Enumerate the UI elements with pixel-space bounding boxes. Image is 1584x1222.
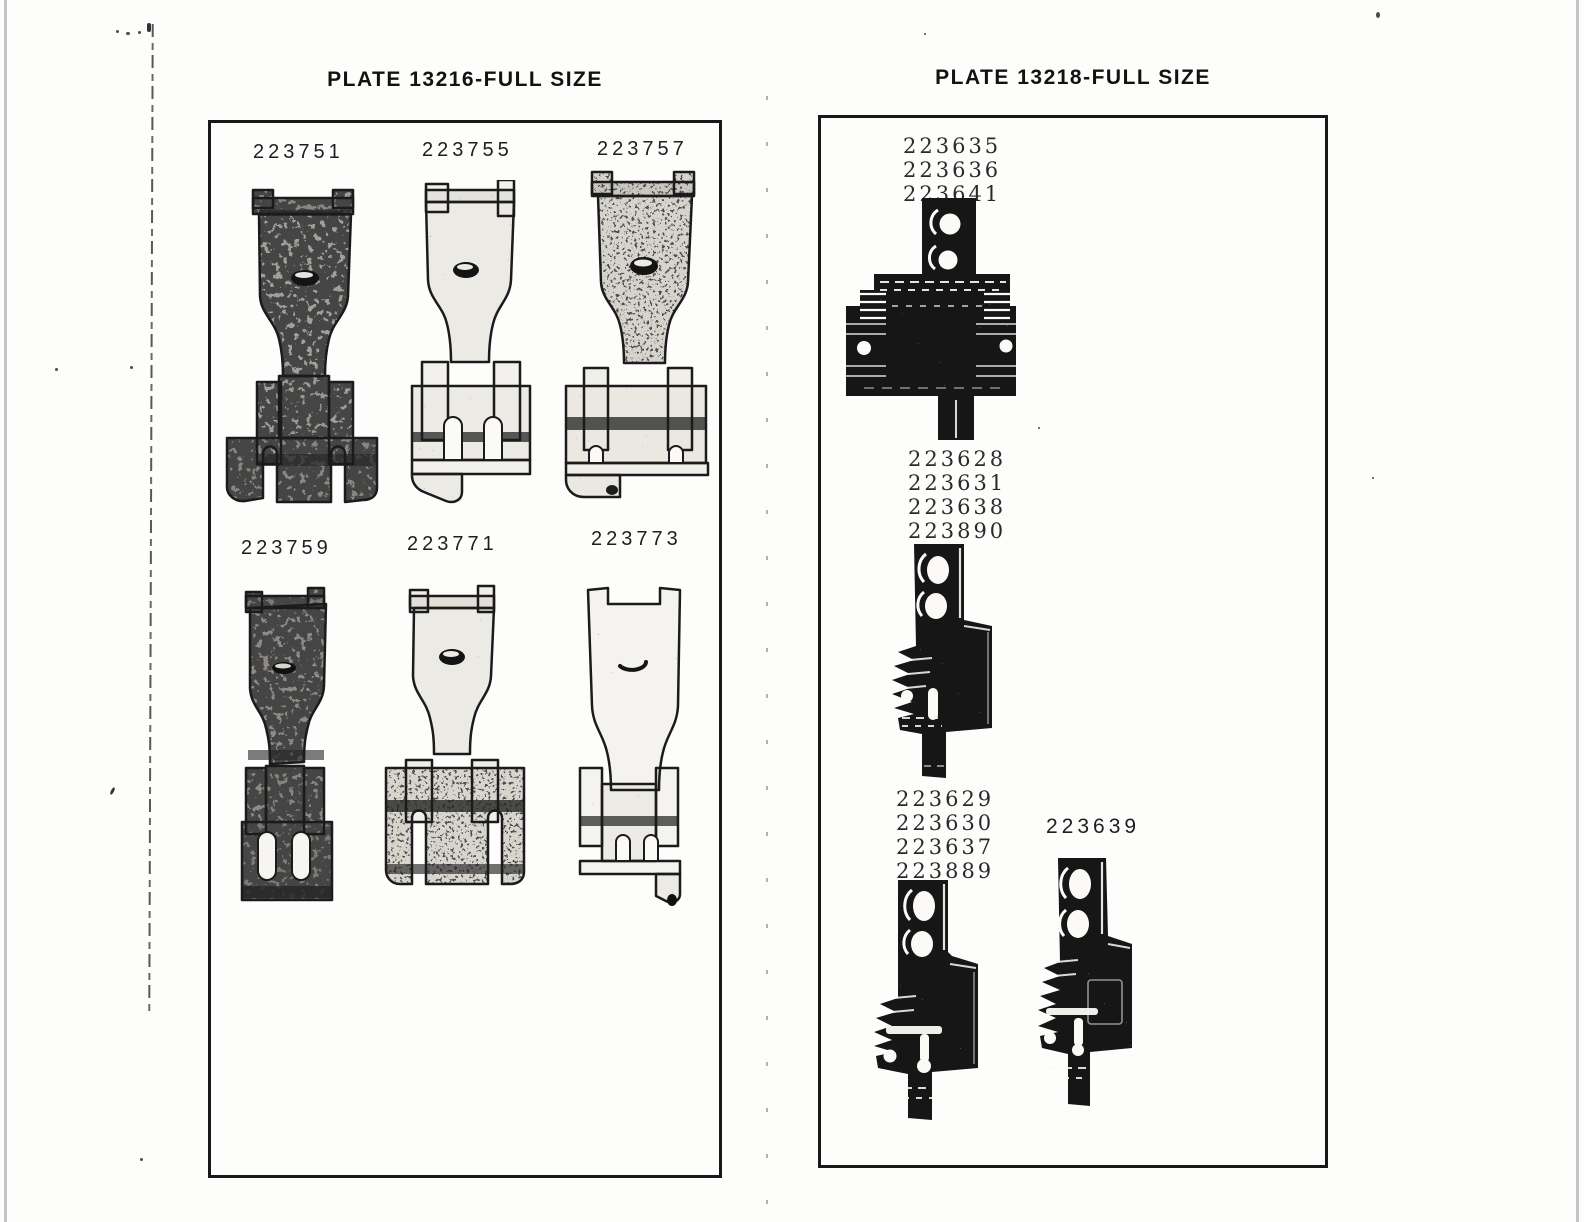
plate-13216-title: PLATE 13216-FULL SIZE <box>208 68 722 92</box>
part-label-223771: 223771 <box>407 533 498 556</box>
part-label-group-223628: 223628 223631 223638 223890 <box>908 447 1006 543</box>
part-223771-illustration <box>370 576 540 894</box>
part-223639-illustration <box>1026 850 1146 1110</box>
scan-speck <box>1372 477 1374 479</box>
scan-speck <box>140 1158 143 1161</box>
scan-speck <box>147 23 151 32</box>
part-223757-illustration <box>556 170 712 508</box>
part-label-223759: 223759 <box>241 537 332 560</box>
part-223635-illustration <box>840 190 1022 448</box>
part-223628-illustration <box>880 540 1002 780</box>
scan-speck <box>55 368 58 371</box>
center-fold-dots <box>766 96 768 1222</box>
part-label-223639: 223639 <box>1046 815 1140 839</box>
scan-speck <box>138 31 141 34</box>
page-left-edge <box>4 0 7 1222</box>
part-223629-illustration <box>860 876 994 1123</box>
part-label-group-223629: 223629 223630 223637 223889 <box>896 787 994 883</box>
scan-speck <box>924 33 926 35</box>
page-right-edge <box>1576 0 1579 1222</box>
part-label-223755: 223755 <box>422 139 513 162</box>
scan-speck <box>126 32 130 35</box>
scan-speck <box>109 787 115 795</box>
part-label-223751: 223751 <box>253 141 344 164</box>
part-223755-illustration <box>400 180 544 504</box>
binding-crease <box>148 24 153 1012</box>
catalog-page: PLATE 13216-FULL SIZE 223751 223755 2237… <box>0 0 1584 1222</box>
part-223773-illustration <box>568 578 710 910</box>
scan-speck <box>116 30 119 33</box>
part-223759-illustration <box>226 580 346 907</box>
part-label-223773: 223773 <box>591 528 682 551</box>
plate-13218-title: PLATE 13218-FULL SIZE <box>818 66 1328 90</box>
part-223751-illustration <box>213 186 391 508</box>
scan-speck <box>130 366 133 369</box>
part-label-223757: 223757 <box>597 138 688 161</box>
scan-speck <box>1376 12 1380 18</box>
